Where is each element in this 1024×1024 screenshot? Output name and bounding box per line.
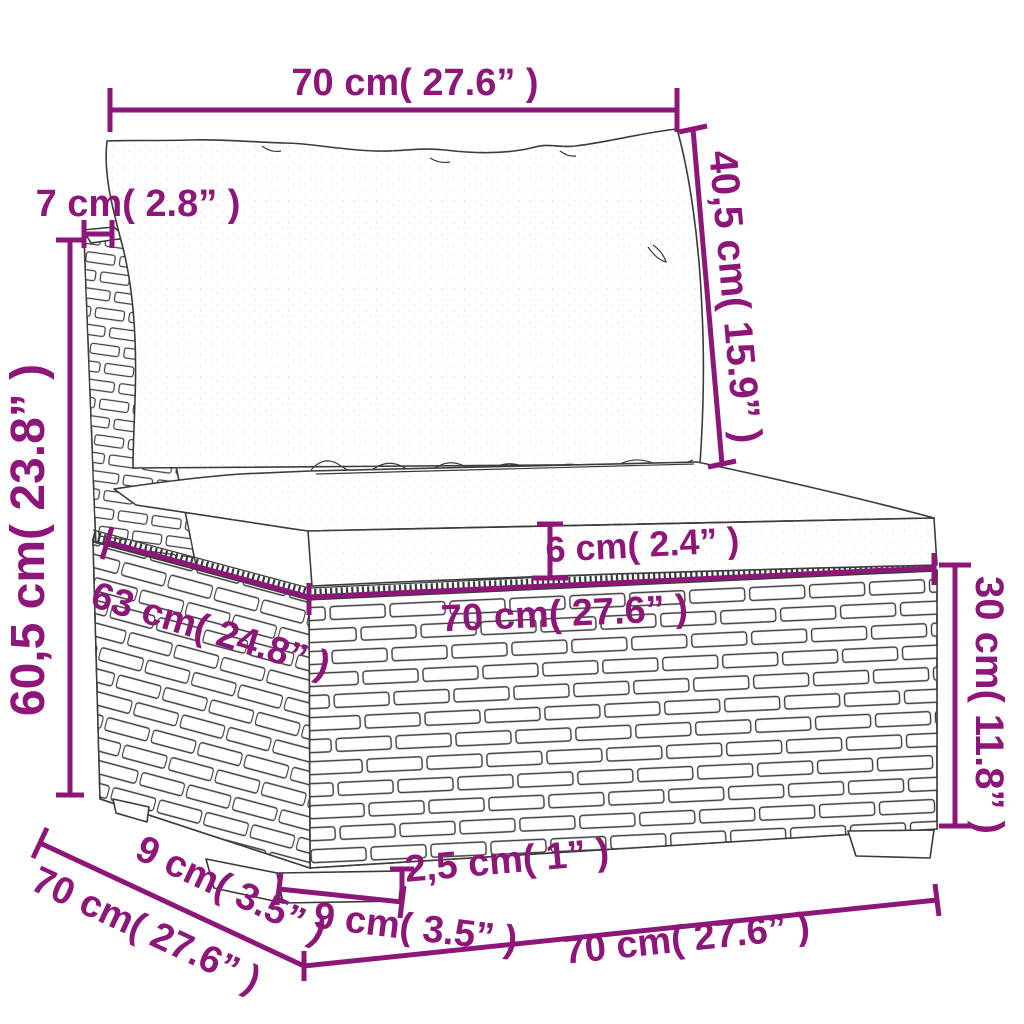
sofa-dimension-diagram: 70 cm( 27.6” ) 7 cm( 2.8” ) 40,5 cm( 15.…	[0, 0, 1024, 1024]
dim-back-cushion-width: 70 cm( 27.6” )	[110, 62, 677, 132]
back-cushion	[106, 129, 703, 473]
dim-label-overall-height: 60,5 cm( 23.8” )	[2, 364, 55, 716]
dim-label-back-cushion-width: 70 cm( 27.6” )	[291, 62, 538, 104]
sofa-sketch	[83, 129, 937, 903]
dim-label-back-cushion-height: 40,5 cm( 15.9” )	[700, 149, 769, 445]
diagram-canvas: 70 cm( 27.6” ) 7 cm( 2.8” ) 40,5 cm( 15.…	[0, 0, 1024, 1024]
dim-label-overall-width: 70 cm( 27.6” )	[562, 905, 812, 973]
dim-label-foot-width: 9 cm( 3.5” )	[311, 895, 519, 962]
seat-cushion-texture	[114, 462, 937, 586]
back-cushion-texture	[106, 129, 703, 468]
dim-base-height: 30 cm( 11.8” )	[939, 565, 1011, 834]
dim-label-back-panel-thickness: 7 cm( 2.8” )	[36, 183, 241, 225]
base	[93, 530, 937, 868]
dim-overall-height: 60,5 cm( 23.8” )	[2, 240, 84, 795]
dim-label-base-height: 30 cm( 11.8” )	[967, 576, 1011, 834]
seat-cushion	[114, 462, 937, 586]
front-right-foot	[848, 830, 934, 858]
